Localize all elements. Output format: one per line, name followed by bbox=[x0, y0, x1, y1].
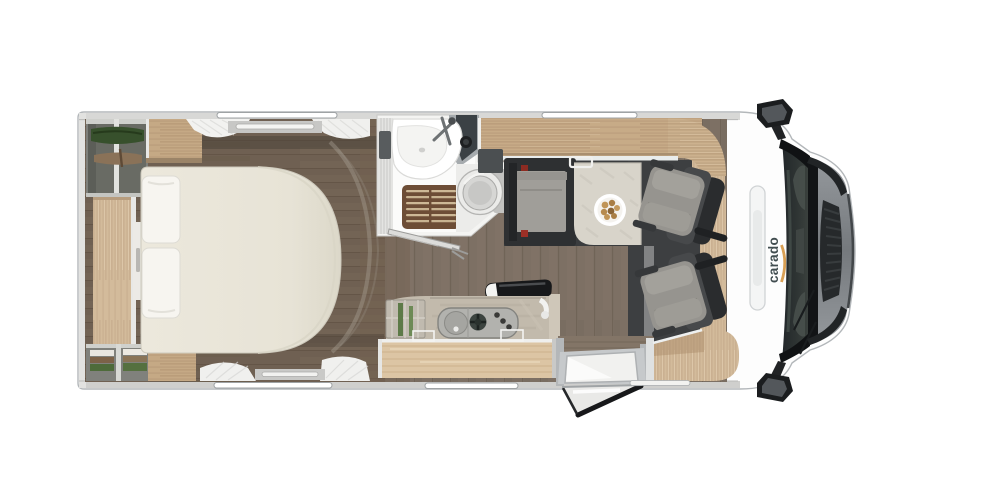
svg-text:carado: carado bbox=[766, 237, 781, 283]
